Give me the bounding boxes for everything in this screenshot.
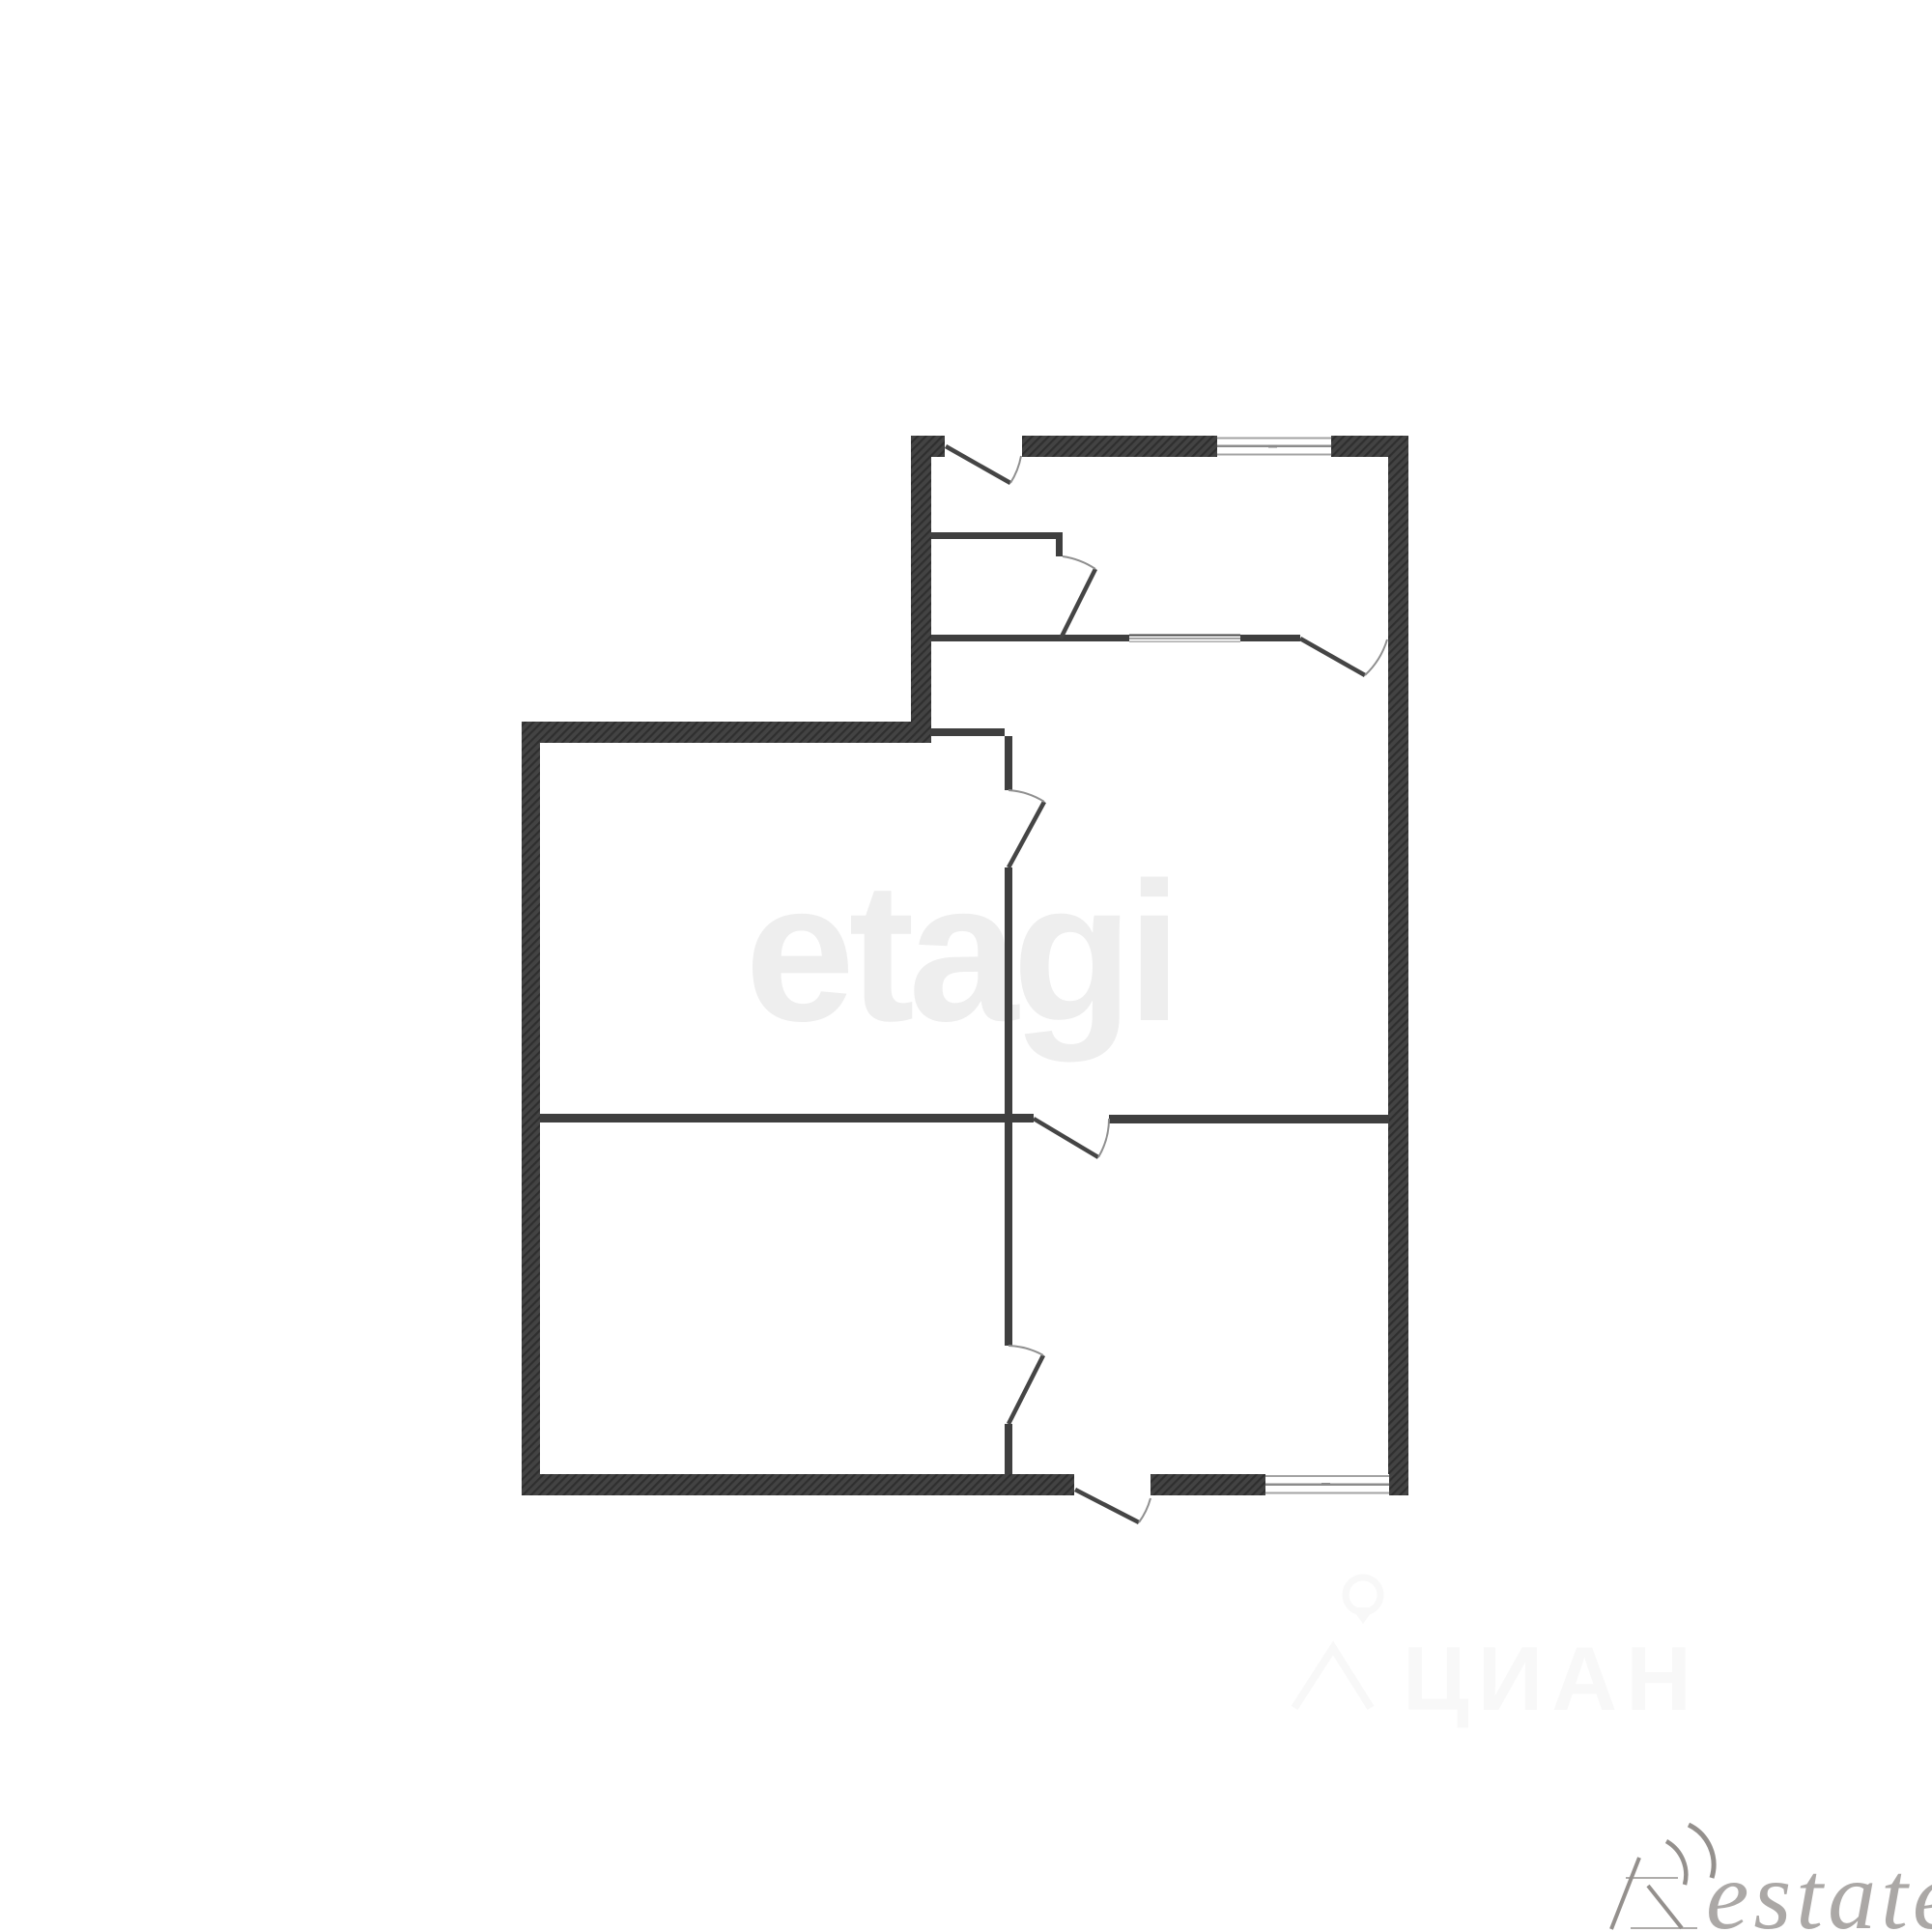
svg-text:estate: estate: [1706, 1842, 1932, 1932]
svg-text:etagi: etagi: [745, 841, 1176, 1063]
svg-text:ЦИАН: ЦИАН: [1403, 1628, 1700, 1729]
